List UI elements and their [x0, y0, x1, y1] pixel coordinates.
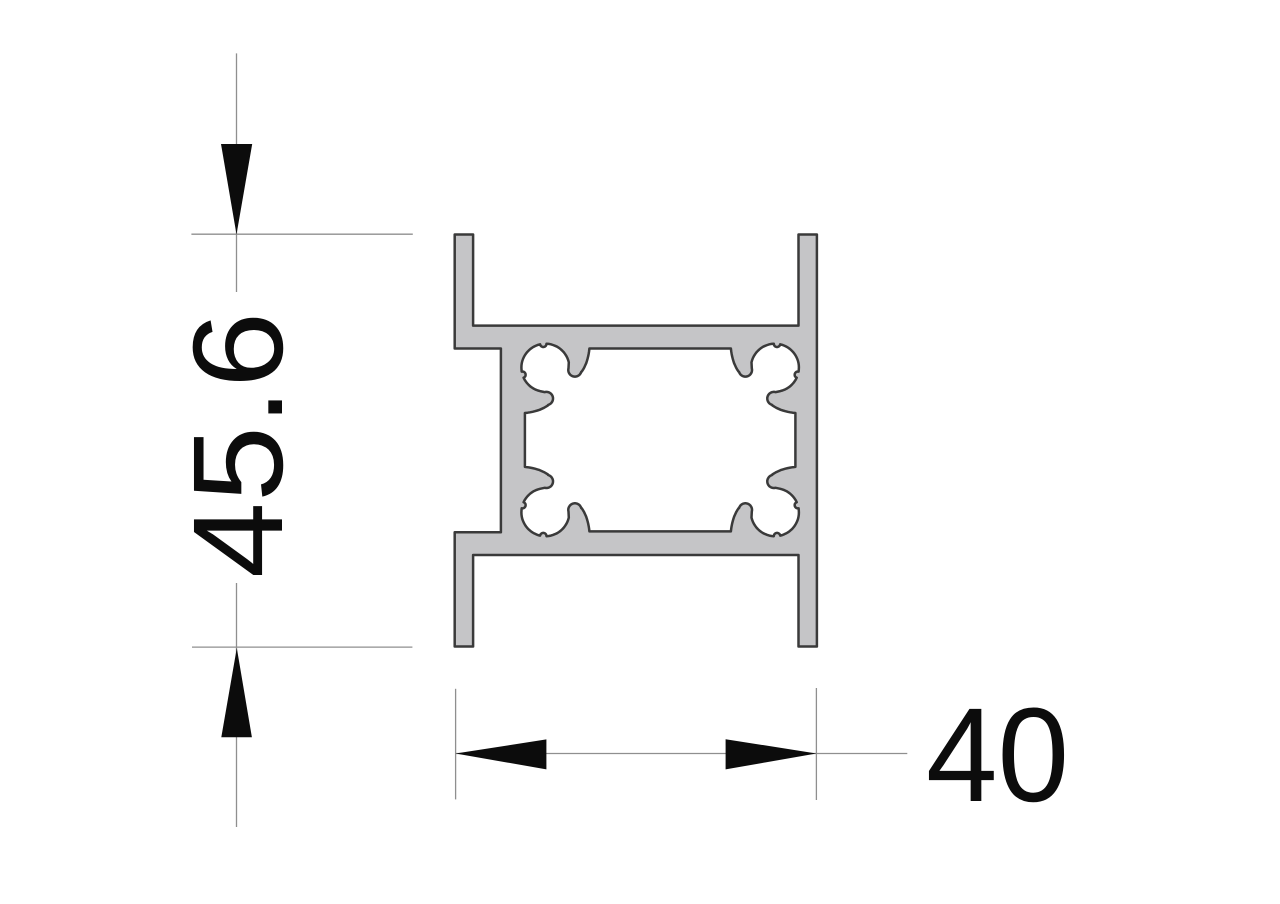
svg-text:40: 40 — [926, 680, 1069, 830]
svg-text:45.6: 45.6 — [167, 312, 310, 578]
